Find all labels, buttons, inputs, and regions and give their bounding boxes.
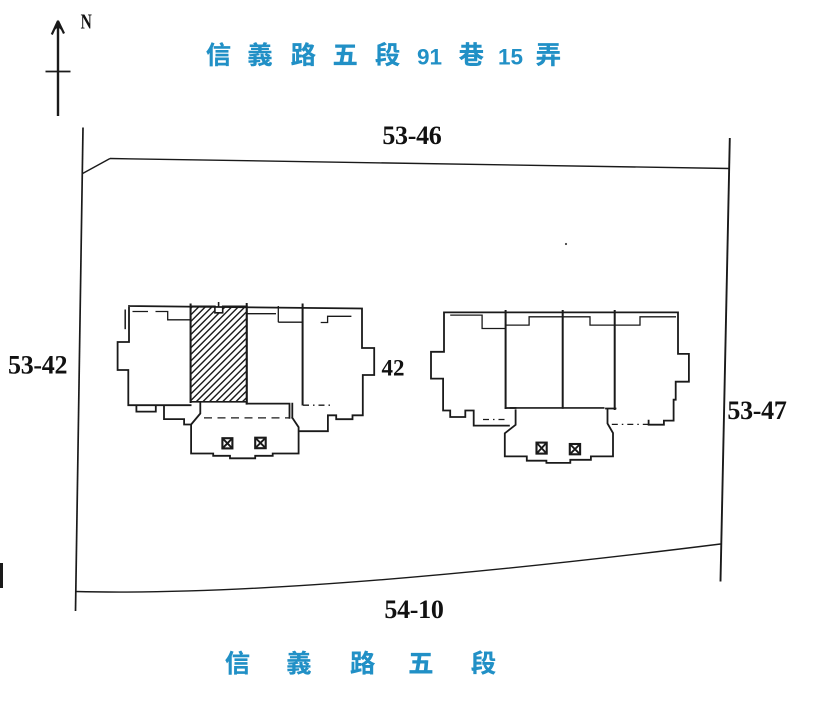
svg-text:53-47: 53-47 [727,396,786,425]
svg-text:91: 91 [417,45,442,70]
svg-text:N: N [81,10,93,33]
svg-text:53-46: 53-46 [382,121,441,150]
svg-text:54-10: 54-10 [384,595,443,624]
svg-text:53-42: 53-42 [8,350,67,379]
svg-text:42: 42 [382,356,405,381]
svg-text:15: 15 [498,45,523,70]
